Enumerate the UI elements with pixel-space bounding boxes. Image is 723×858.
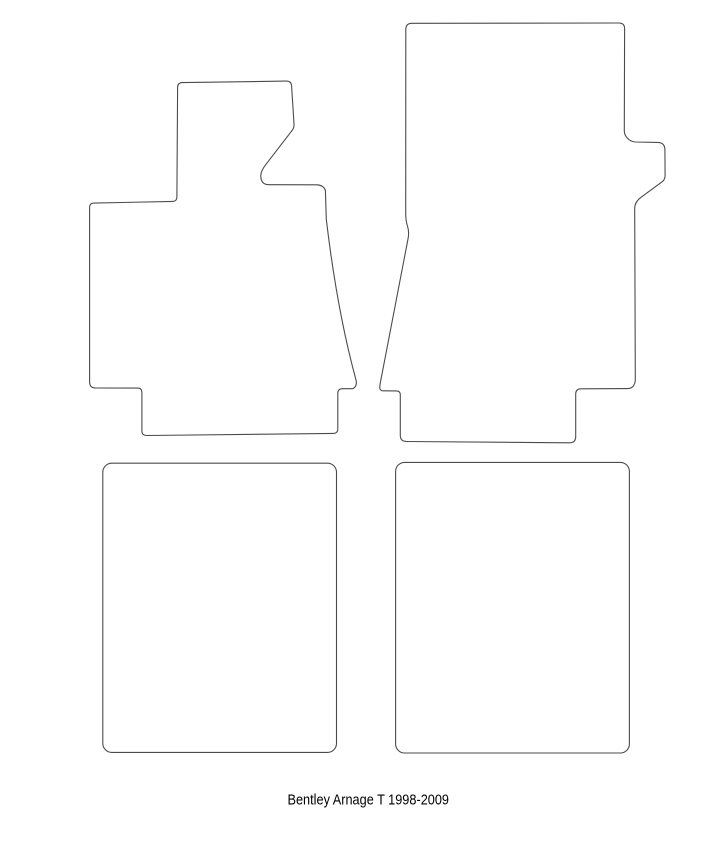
- svg-text:Bentley Arnage T 1998-2009: Bentley Arnage T 1998-2009: [288, 793, 450, 809]
